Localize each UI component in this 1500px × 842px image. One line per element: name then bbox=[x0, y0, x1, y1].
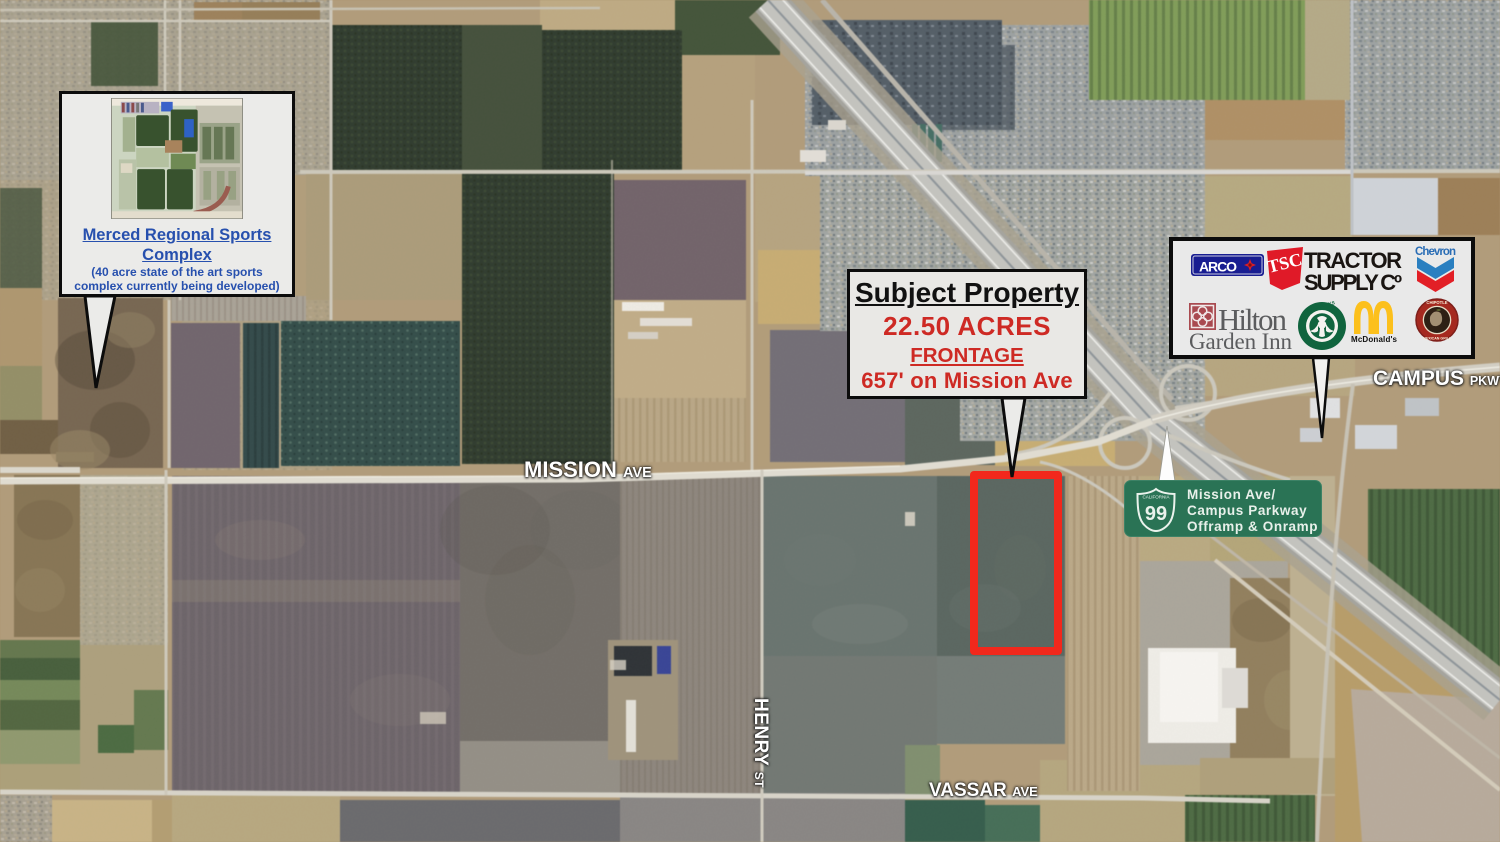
svg-text:99: 99 bbox=[1145, 503, 1167, 525]
svg-text:COFFEE: COFFEE bbox=[1315, 344, 1334, 349]
svg-text:SUPPLY Cº: SUPPLY Cº bbox=[1304, 270, 1402, 295]
svg-text:ARCO: ARCO bbox=[1199, 259, 1237, 275]
svg-text:CHIPOTLE: CHIPOTLE bbox=[1426, 300, 1447, 305]
svg-text:Chevron: Chevron bbox=[1415, 246, 1456, 258]
svg-text:Garden Inn: Garden Inn bbox=[1189, 329, 1293, 354]
svg-text:MEXICAN GRILL: MEXICAN GRILL bbox=[1423, 336, 1452, 340]
svg-text:McDonald's: McDonald's bbox=[1351, 335, 1398, 344]
svg-text:CALIFORNIA: CALIFORNIA bbox=[1142, 495, 1169, 500]
